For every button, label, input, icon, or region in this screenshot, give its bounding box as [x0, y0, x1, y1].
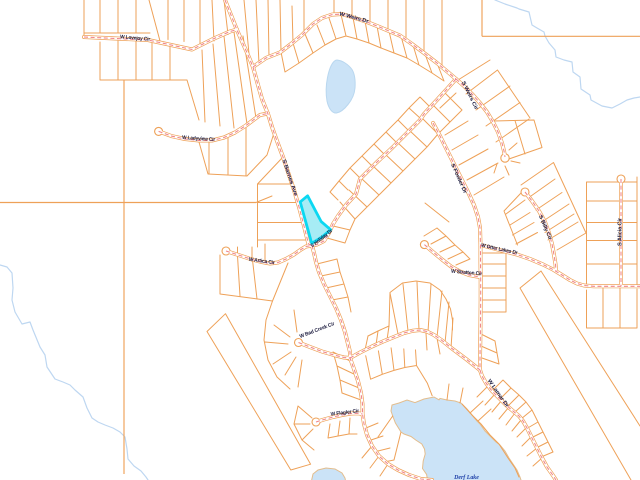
svg-text:S Alicia Cir: S Alicia Cir — [618, 218, 624, 246]
svg-text:Derf Lake: Derf Lake — [453, 475, 479, 480]
